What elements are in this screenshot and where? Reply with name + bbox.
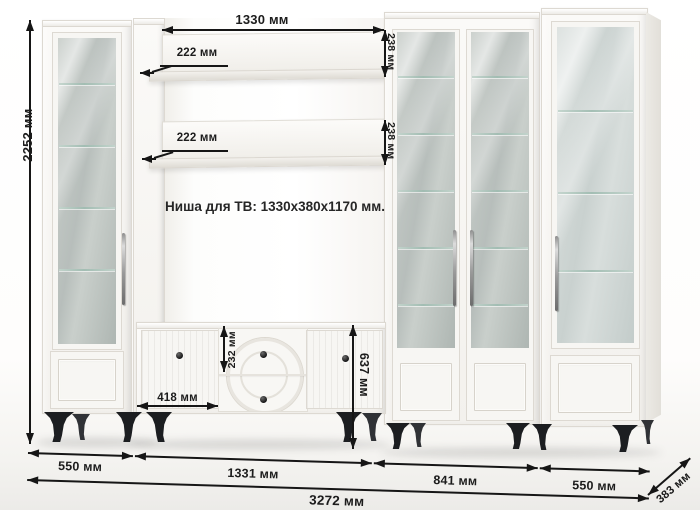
- door-handle: [122, 233, 125, 305]
- left-cabinet-glass-door: [52, 32, 122, 350]
- glass-pane: [397, 32, 455, 348]
- drawer-knob-top: [260, 351, 267, 358]
- cabinet-leg: [362, 413, 382, 441]
- cabinet-leg: [146, 412, 172, 442]
- door-moulding: [474, 363, 526, 411]
- leader-arrow: [140, 72, 154, 74]
- glass-shelf-line: [398, 190, 454, 192]
- door-moulding: [558, 363, 632, 413]
- door-knob: [176, 352, 183, 359]
- glass-pane: [557, 27, 634, 343]
- floor-shadow: [380, 448, 662, 457]
- furniture-dimension-diagram: 2252 мм 1330 мм 238 мм 238 мм 222 мм 222…: [0, 0, 700, 510]
- door-handle: [470, 230, 473, 306]
- cabinet-leg: [72, 414, 90, 440]
- dim-label-shelf-depth-top: 222 мм: [156, 47, 238, 60]
- door-handle: [453, 230, 456, 306]
- glass-pane: [58, 38, 116, 344]
- column-top-edge: [134, 19, 164, 25]
- drawer-knob-bottom: [260, 396, 267, 403]
- glass-shelf-line: [398, 133, 454, 135]
- dim-line-right-cabinet-width: [540, 467, 650, 472]
- dim-line-drawer-height: [223, 326, 225, 372]
- cabinet-leg: [532, 424, 552, 450]
- door-knob: [342, 355, 349, 362]
- dim-label-total-height: 2252 мм: [21, 87, 35, 183]
- door-handle: [555, 236, 558, 311]
- left-cabinet-lower-door: [50, 351, 124, 409]
- door-moulding: [58, 359, 116, 401]
- dim-label-shelf-depth-mid: 222 мм: [156, 132, 238, 145]
- right-cabinet-lower-door: [550, 355, 640, 421]
- glass-shelf-line: [558, 110, 633, 112]
- dim-line-left-cabinet-width: [28, 452, 133, 457]
- glass-shelf-line: [472, 304, 528, 306]
- bookcase-lower-panel: [471, 360, 529, 414]
- cabinet-top-edge: [542, 9, 647, 15]
- cabinet-leg: [410, 423, 426, 447]
- left-display-cabinet: [42, 20, 132, 414]
- cabinet-leg: [506, 423, 530, 449]
- glass-shelf-line: [59, 207, 115, 209]
- dim-label-left-cabinet-width: 550 мм: [27, 459, 132, 476]
- glass-shelf-line: [398, 76, 454, 78]
- glass-shelf-line: [398, 247, 454, 249]
- dim-line-stand-height: [352, 325, 354, 449]
- glass-shelf-line: [59, 145, 115, 147]
- dim-line-total-height: [29, 20, 31, 444]
- dim-label-shelf-clearance-top: 238 мм: [384, 16, 396, 88]
- right-cabinet-side-panel: [646, 12, 661, 423]
- bookcase-right-door: [466, 29, 534, 421]
- tv-stand-right-door: [306, 330, 383, 409]
- dim-label-stand-height: 637 мм: [356, 339, 370, 411]
- dim-label-tv-section-width: 1331 мм: [134, 464, 371, 485]
- dim-line-stand-door-width: [137, 405, 218, 407]
- dim-label-shelf-clearance-mid: 238 мм: [384, 105, 396, 177]
- glass-shelf-line: [558, 192, 633, 194]
- cabinet-top-edge: [43, 21, 131, 27]
- dim-label-bookcase-width: 841 мм: [373, 472, 537, 491]
- dim-label-right-cabinet-width: 550 мм: [539, 478, 649, 495]
- glass-shelf-line: [398, 304, 454, 306]
- glass-shelf-line: [472, 190, 528, 192]
- bookcase-lower-panel: [397, 360, 455, 414]
- leader-arrow: [142, 158, 156, 160]
- right-display-cabinet: [541, 8, 648, 427]
- dim-label-niche-width: 1330 мм: [192, 13, 332, 27]
- dim-label-total-width: 3272 мм: [256, 492, 416, 510]
- bookcase: [384, 12, 540, 425]
- glass-shelf-line: [59, 269, 115, 271]
- dim-label-stand-door-width: 418 мм: [137, 392, 218, 405]
- glass-shelf-line: [472, 247, 528, 249]
- dim-line-tv-section-width: [135, 455, 372, 464]
- dim-line-bookcase-width: [374, 462, 538, 469]
- cabinet-leg: [612, 425, 638, 452]
- door-moulding: [400, 363, 452, 411]
- glass-pane: [471, 32, 529, 348]
- bookcase-top-edge: [385, 13, 539, 19]
- glass-shelf-line: [558, 270, 633, 272]
- glass-shelf-line: [59, 83, 115, 85]
- dim-line-niche-width: [162, 29, 384, 31]
- tv-niche-note: Ниша для ТВ: 1330x380x1170 мм.: [164, 199, 386, 214]
- bottom-dimension-rows: 550 мм 1331 мм 841 мм 550 мм 3272 мм: [27, 452, 650, 510]
- glass-shelf-line: [472, 133, 528, 135]
- dim-label-drawer-height: 232 мм: [227, 314, 239, 386]
- bookcase-left-door: [392, 29, 460, 421]
- right-cabinet-glass-door: [551, 21, 640, 349]
- glass-shelf-line: [472, 76, 528, 78]
